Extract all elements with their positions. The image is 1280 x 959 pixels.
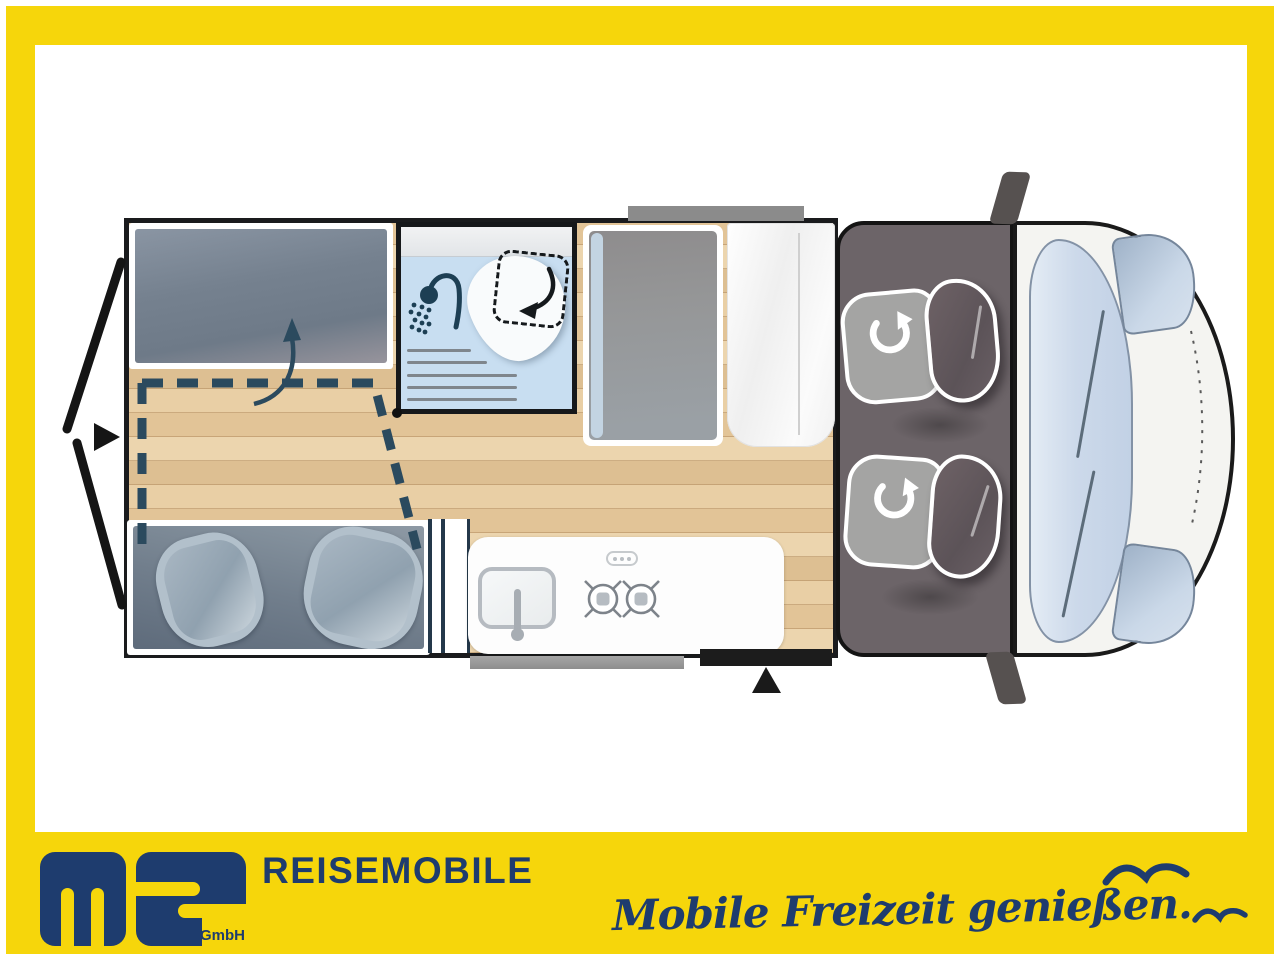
shower-drain-line: [407, 374, 517, 377]
side-bench: [583, 225, 723, 446]
tall-cabinet: [727, 223, 835, 447]
brand-name: REISEMOBILE: [262, 850, 533, 892]
two-burner-hob-icon: [619, 577, 663, 621]
mattress: [135, 229, 387, 363]
rear-bed: [127, 520, 430, 655]
pillow: [147, 526, 273, 649]
shower-drain-line: [407, 361, 487, 364]
swivel-seat: [841, 445, 1008, 588]
cabinet-divider: [428, 519, 470, 653]
pillow: [294, 526, 424, 649]
entry-step: [470, 656, 684, 669]
rotate-seat-icon: [866, 474, 919, 527]
rear-bed-folded-panel: [129, 223, 393, 369]
logo-letter-s: GmbH: [136, 852, 246, 946]
sliding-window-bar: [628, 206, 804, 221]
shower-drain-line: [407, 349, 471, 352]
sliding-door-bar: [700, 649, 832, 666]
logo-letter-m: [40, 852, 126, 946]
dealer-floorplan-image: GmbH REISEMOBILE Mobile Freizeit genieße…: [0, 0, 1280, 959]
logo-gmbh: GmbH: [200, 927, 245, 944]
kitchen-counter: [468, 537, 784, 654]
mattress: [133, 526, 424, 649]
shower-drain-line: [407, 386, 517, 389]
seagull-icon: [1192, 902, 1248, 932]
bench-edge: [591, 233, 603, 438]
ms-logo: GmbH: [40, 852, 252, 946]
hob-control-panel: [606, 551, 638, 566]
shower-room: [396, 222, 577, 414]
shower-icon: [407, 261, 473, 337]
seat-backrest: [925, 453, 1005, 582]
swivel-toilet-arrow-icon: [505, 261, 565, 327]
rotate-seat-icon: [862, 309, 916, 363]
faucet: [514, 589, 521, 635]
shower-drain-line: [407, 398, 517, 401]
seagull-icon: [1102, 856, 1190, 898]
seat-backrest: [921, 276, 1004, 406]
swivel-seat: [838, 273, 1007, 418]
door-hinge-dot: [392, 408, 402, 418]
bench-cushion: [589, 231, 717, 440]
